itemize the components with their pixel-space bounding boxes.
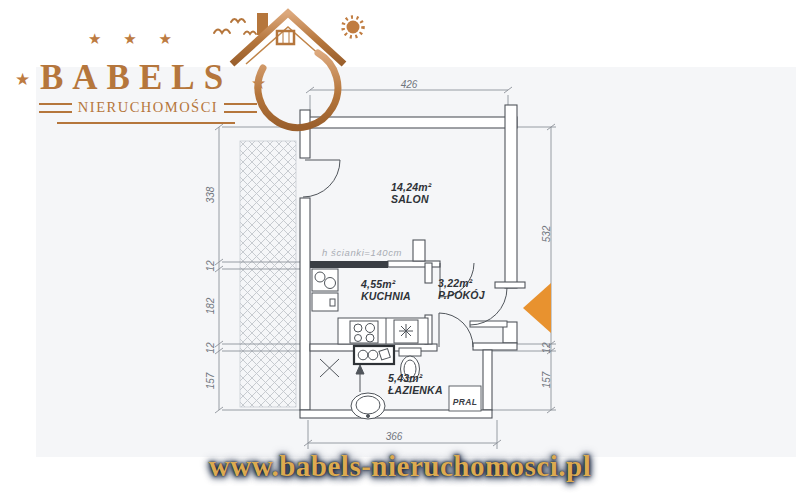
room-label-salon: 14,24m² SALON: [391, 182, 432, 205]
toilet: [399, 348, 421, 356]
dim-left-338: 338: [205, 187, 216, 204]
drain-icon: [320, 359, 339, 377]
dim-right-532: 532: [541, 226, 552, 243]
logo: ★ ★ ★ ★ BABELS ★ NIERUCHOMOŚCI: [0, 0, 400, 145]
bird-icon: [214, 30, 230, 34]
snowflake-icon: [399, 324, 413, 338]
bird-icon: [231, 19, 245, 22]
kuchnia-area: 4,55m²: [361, 279, 411, 291]
dim-left-12a: 12: [205, 260, 216, 271]
wall-height-note: h ścianki=140cm: [322, 247, 402, 258]
dim-left-157: 157: [205, 373, 216, 390]
dim-right-157: 157: [541, 372, 552, 389]
lazienka-name: ŁAZIENKA: [388, 385, 443, 397]
sun-icon: [347, 21, 360, 34]
dim-bottom: 366: [386, 431, 403, 442]
bird-icon: [244, 32, 256, 35]
salon-area: 14,24m²: [391, 182, 432, 194]
washer-closet-label: PRAL: [453, 397, 477, 407]
swoosh-icon: [258, 53, 338, 128]
page: 14,24m² SALON 4,55m² KUCHNIA 3,22m² P.PO…: [0, 0, 800, 500]
logo-house-art: [0, 0, 420, 145]
footer: www.babels-nieruchomosci.pl: [0, 450, 800, 483]
dim-left-182: 182: [205, 298, 216, 315]
room-label-ppokoj: 3,22m² P.POKÓJ: [438, 278, 485, 301]
room-label-lazienka: 5,43m² ŁAZIENKA: [388, 373, 443, 396]
dim-left-12b: 12: [205, 342, 216, 353]
hatched-area: [240, 141, 296, 407]
entrance-arrow: [523, 283, 551, 333]
low-wall-140cm: [310, 261, 388, 268]
website-url[interactable]: www.babels-nieruchomosci.pl: [209, 450, 591, 482]
ppokoj-name: P.POKÓJ: [438, 290, 485, 302]
kuchnia-name: KUCHNIA: [361, 291, 411, 303]
room-label-kuchnia: 4,55m² KUCHNIA: [361, 279, 411, 302]
salon-name: SALON: [391, 194, 432, 206]
window-icon: [277, 31, 294, 44]
ppokoj-area: 3,22m²: [438, 278, 485, 290]
lazienka-area: 5,43m²: [388, 373, 443, 385]
dim-right-12: 12: [541, 342, 552, 353]
